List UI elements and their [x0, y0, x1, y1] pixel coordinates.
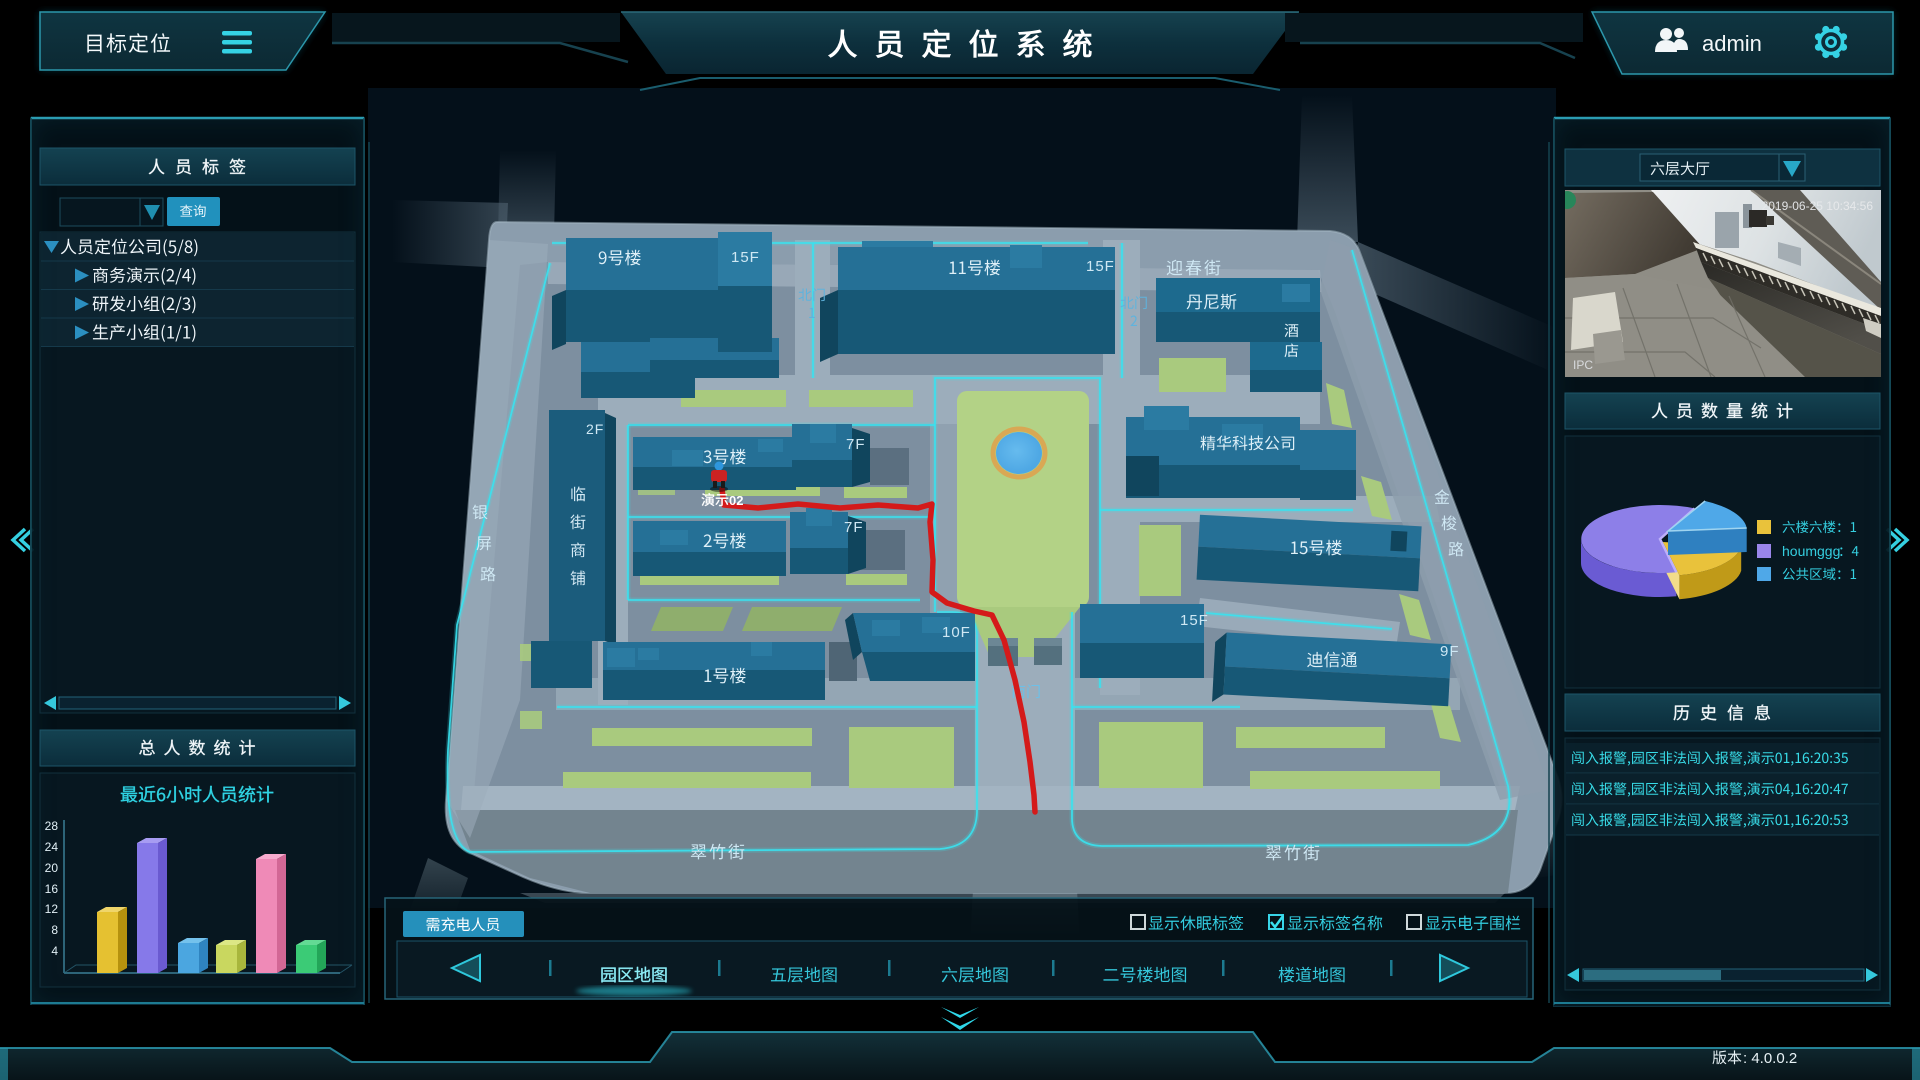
svg-text:8: 8: [51, 923, 58, 937]
svg-text:7F: 7F: [844, 519, 864, 536]
svg-text:15F: 15F: [1086, 258, 1115, 275]
svg-text:4: 4: [51, 944, 58, 958]
svg-text:15F: 15F: [1180, 612, 1209, 629]
svg-text:24: 24: [45, 840, 59, 854]
svg-text:15F: 15F: [731, 249, 760, 266]
svg-text:7F: 7F: [846, 436, 866, 453]
svg-text:2019-06-25 10:34:56: 2019-06-25 10:34:56: [1762, 199, 1874, 213]
svg-text:houmggg: houmggg: [1782, 543, 1840, 559]
svg-text:admin: admin: [1702, 31, 1762, 56]
svg-text:: 4.0.0.2: : 4.0.0.2: [1743, 1050, 1797, 1067]
svg-text:16: 16: [45, 882, 59, 896]
svg-text:20: 20: [45, 861, 59, 875]
svg-text:9F: 9F: [1440, 643, 1460, 660]
svg-text:10F: 10F: [942, 624, 971, 641]
svg-text:2F: 2F: [586, 421, 604, 437]
svg-text:IPC: IPC: [1573, 358, 1593, 372]
svg-text:28: 28: [45, 819, 59, 833]
svg-text:12: 12: [45, 902, 59, 916]
svg-text:02: 02: [729, 493, 743, 508]
